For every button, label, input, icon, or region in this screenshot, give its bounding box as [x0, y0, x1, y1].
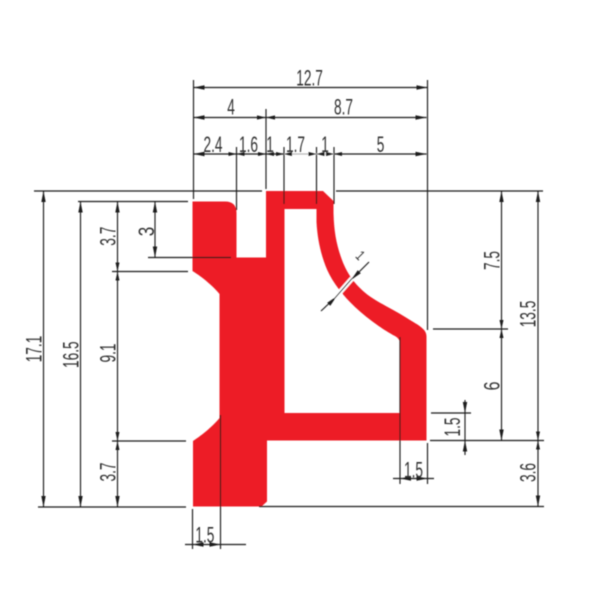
svg-text:1.7: 1.7: [286, 132, 305, 157]
svg-text:3: 3: [134, 227, 159, 237]
svg-text:4: 4: [227, 94, 235, 119]
svg-text:16.5: 16.5: [59, 341, 84, 368]
svg-text:12.7: 12.7: [296, 66, 323, 91]
svg-text:3.7: 3.7: [96, 227, 121, 246]
svg-text:3.7: 3.7: [96, 463, 121, 482]
svg-text:5: 5: [377, 132, 385, 157]
svg-text:6: 6: [480, 382, 505, 391]
svg-text:2.4: 2.4: [204, 132, 223, 157]
svg-text:1: 1: [352, 248, 367, 263]
svg-text:13.5: 13.5: [516, 301, 541, 328]
svg-text:9.1: 9.1: [96, 344, 121, 363]
svg-text:17.1: 17.1: [22, 336, 47, 363]
svg-text:1: 1: [321, 132, 329, 157]
svg-text:1.6: 1.6: [239, 132, 258, 157]
svg-text:1.5: 1.5: [195, 523, 214, 548]
svg-text:1.5: 1.5: [404, 457, 423, 482]
svg-text:8.7: 8.7: [334, 94, 353, 119]
svg-text:7.5: 7.5: [480, 251, 505, 270]
svg-text:3.6: 3.6: [516, 463, 541, 482]
svg-text:1: 1: [266, 132, 274, 157]
svg-text:1.5: 1.5: [440, 418, 465, 437]
